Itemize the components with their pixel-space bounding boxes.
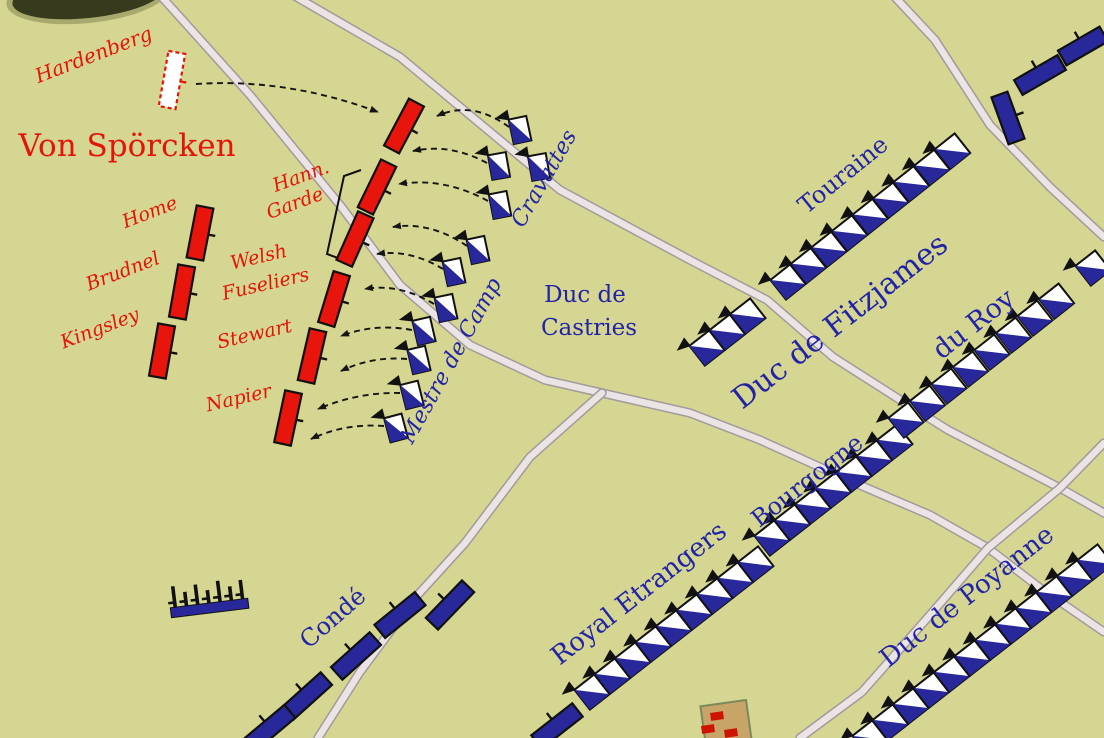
battle-map: HardenbergVon SpörckenHann.GardeHomeBrud…: [0, 0, 1104, 738]
label-duc-de: Duc de: [544, 282, 626, 308]
label-von-spoercken: Von Spörcken: [17, 128, 235, 164]
label-castries: Castries: [541, 315, 637, 341]
battlefield-svg: HardenbergVon SpörckenHann.GardeHomeBrud…: [0, 0, 1104, 738]
